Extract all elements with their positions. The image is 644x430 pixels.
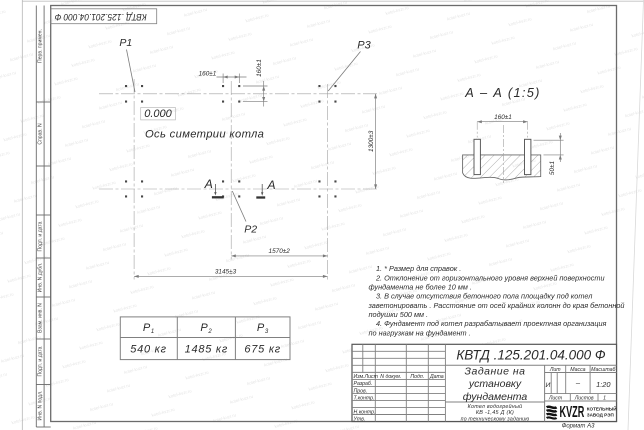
svg-text:3: 3 — [265, 329, 269, 335]
svg-text:Пров.: Пров. — [354, 388, 368, 394]
svg-text:kotel-kvzr.ru: kotel-kvzr.ru — [416, 189, 441, 200]
svg-text:kotel-kvzr.ru: kotel-kvzr.ru — [546, 120, 571, 131]
svg-text:подушки 500 мм .: подушки 500 мм . — [369, 310, 429, 319]
svg-text:kotel-kvzr.ru: kotel-kvzr.ru — [246, 375, 271, 386]
svg-text:Р2: Р2 — [244, 224, 257, 236]
svg-text:kotel-kvzr.ru: kotel-kvzr.ru — [280, 338, 305, 349]
svg-text:kotel-kvzr.ru: kotel-kvzr.ru — [64, 137, 89, 148]
svg-text:kotel-kvzr.ru: kotel-kvzr.ru — [552, 40, 577, 51]
svg-text:kotel-kvzr.ru: kotel-kvzr.ru — [505, 237, 530, 248]
svg-text:Р3: Р3 — [357, 40, 371, 52]
svg-text:Масштаб: Масштаб — [591, 367, 616, 373]
svg-text:kotel-kvzr.ru: kotel-kvzr.ru — [556, 182, 581, 193]
svg-text:kotel-kvzr.ru: kotel-kvzr.ru — [317, 79, 342, 90]
svg-text:kotel-kvzr.ru: kotel-kvzr.ru — [183, 7, 208, 18]
svg-text:kotel-kvzr.ru: kotel-kvzr.ru — [461, 213, 486, 224]
svg-text:kotel-kvzr.ru: kotel-kvzr.ru — [325, 362, 350, 373]
svg-text:kotel-kvzr.ru: kotel-kvzr.ru — [573, 163, 598, 174]
svg-text:Перв. примен.: Перв. примен. — [38, 29, 44, 63]
svg-text:kotel-kvzr.ru: kotel-kvzr.ru — [389, 146, 414, 157]
svg-text:Лист: Лист — [548, 396, 563, 402]
svg-text:kotel-kvzr.ru: kotel-kvzr.ru — [624, 107, 644, 118]
svg-text:kotel-kvzr.ru: kotel-kvzr.ru — [68, 278, 93, 289]
svg-text:kotel-kvzr.ru: kotel-kvzr.ru — [130, 284, 155, 295]
svg-text:Подп. и дата: Подп. и дата — [38, 221, 44, 251]
svg-text:kotel-kvzr.ru: kotel-kvzr.ru — [221, 111, 246, 122]
svg-text:Н.контр.: Н.контр. — [354, 410, 376, 416]
svg-text:kotel-kvzr.ru: kotel-kvzr.ru — [211, 49, 236, 60]
svg-text:1485 кг: 1485 кг — [185, 344, 228, 356]
svg-text:kotel-kvzr.ru: kotel-kvzr.ru — [529, 139, 554, 150]
svg-text:kotel-kvzr.ru: kotel-kvzr.ru — [412, 48, 437, 59]
svg-text:kotel-kvzr.ru: kotel-kvzr.ru — [327, 141, 352, 152]
svg-text:Р: Р — [200, 322, 208, 334]
svg-text:kotel-kvzr.ru: kotel-kvzr.ru — [0, 211, 21, 222]
svg-text:kotel-kvzr.ru: kotel-kvzr.ru — [225, 252, 250, 263]
svg-text:kotel-kvzr.ru: kotel-kvzr.ru — [0, 230, 4, 241]
svg-text:kotel-kvzr.ru: kotel-kvzr.ru — [344, 122, 369, 133]
svg-text:Р: Р — [143, 322, 151, 334]
svg-text:kotel-kvzr.ru: kotel-kvzr.ru — [272, 55, 297, 66]
svg-text:kotel-kvzr.ru: kotel-kvzr.ru — [614, 46, 639, 57]
svg-text:КВТД .125.201.04.000 Ф: КВТД .125.201.04.000 Ф — [55, 12, 147, 22]
svg-text:kotel-kvzr.ru: kotel-kvzr.ru — [98, 100, 123, 111]
svg-text:kotel-kvzr.ru: kotel-kvzr.ru — [109, 161, 134, 172]
svg-text:kotel-kvzr.ru: kotel-kvzr.ru — [586, 3, 611, 14]
svg-text:kotel-kvzr.ru: kotel-kvzr.ru — [3, 131, 28, 142]
svg-text:Лит: Лит — [549, 367, 561, 373]
svg-text:Р1: Р1 — [119, 37, 132, 49]
svg-text:kotel-kvzr.ru: kotel-kvzr.ru — [177, 87, 202, 98]
svg-text:kotel-kvzr.ru: kotel-kvzr.ru — [157, 327, 182, 338]
svg-text:kotel-kvzr.ru: kotel-kvzr.ru — [335, 423, 360, 430]
svg-text:kotel-kvzr.ru: kotel-kvzr.ru — [253, 295, 278, 306]
svg-text:kotel-kvzr.ru: kotel-kvzr.ru — [334, 61, 359, 72]
svg-text:3. В случае отсутствия бет: 3. В случае отсутствия бетонного пола пл… — [376, 292, 592, 301]
svg-text:Разраб.: Разраб. — [354, 381, 373, 387]
svg-text:kotel-kvzr.ru: kotel-kvzr.ru — [0, 353, 25, 364]
svg-text:kotel-kvzr.ru: kotel-kvzr.ru — [580, 83, 605, 94]
svg-text:kotel-kvzr.ru: kotel-kvzr.ru — [106, 382, 131, 393]
svg-text:kotel-kvzr.ru: kotel-kvzr.ru — [306, 18, 331, 29]
svg-text:Масса: Масса — [570, 367, 585, 373]
svg-text:kotel-kvzr.ru: kotel-kvzr.ru — [51, 297, 76, 308]
svg-text:kotel-kvzr.ru: kotel-kvzr.ru — [187, 148, 212, 159]
svg-text:3145±3: 3145±3 — [215, 268, 237, 275]
svg-text:kotel-kvzr.ru: kotel-kvzr.ru — [597, 64, 622, 75]
svg-text:kotel-kvzr.ru: kotel-kvzr.ru — [11, 414, 36, 425]
svg-text:1. * Размер для справок .: 1. * Размер для справок . — [376, 264, 461, 273]
svg-text:kotel-kvzr.ru: kotel-kvzr.ru — [126, 142, 151, 153]
svg-text:фундамента: фундамента — [463, 391, 528, 403]
svg-text:kotel-kvzr.ru: kotel-kvzr.ru — [378, 85, 403, 96]
svg-text:kotel-kvzr.ru: kotel-kvzr.ru — [136, 204, 161, 215]
svg-text:kotel-kvzr.ru: kotel-kvzr.ru — [607, 126, 632, 137]
svg-text:kotel-kvzr.ru: kotel-kvzr.ru — [590, 144, 615, 155]
svg-text:kotel-kvzr.ru: kotel-kvzr.ru — [446, 10, 471, 21]
svg-text:kotel-kvzr.ru: kotel-kvzr.ru — [198, 209, 223, 220]
svg-text:Подп. и дата: Подп. и дата — [38, 346, 44, 376]
svg-text:kotel-kvzr.ru: kotel-kvzr.ru — [488, 256, 513, 267]
svg-text:kotel-kvzr.ru: kotel-kvzr.ru — [262, 0, 287, 5]
svg-text:kotel-kvzr.ru: kotel-kvzr.ru — [321, 221, 346, 232]
svg-text:Листов: Листов — [574, 396, 594, 402]
svg-text:kotel-kvzr.ru: kotel-kvzr.ru — [331, 282, 356, 293]
svg-text:Котел водогрейный: Котел водогрейный — [468, 403, 523, 410]
svg-text:kotel-kvzr.ru: kotel-kvzr.ru — [274, 418, 299, 429]
svg-text:Инв. N дубл.: Инв. N дубл. — [38, 263, 44, 293]
svg-text:kotel-kvzr.ru: kotel-kvzr.ru — [9, 51, 34, 62]
svg-text:kotel-kvzr.ru: kotel-kvzr.ru — [147, 265, 172, 276]
svg-text:kotel-kvzr.ru: kotel-kvzr.ru — [85, 260, 110, 271]
svg-text:Инв. N подл.: Инв. N подл. — [38, 391, 44, 421]
svg-text:kotel-kvzr.ru: kotel-kvzr.ru — [406, 128, 431, 139]
svg-text:kotel-kvzr.ru: kotel-kvzr.ru — [287, 258, 312, 269]
svg-text:kotel-kvzr.ru: kotel-kvzr.ru — [618, 187, 643, 198]
svg-text:kotel-kvzr.ru: kotel-kvzr.ru — [522, 219, 547, 230]
svg-text:kotel-kvzr.ru: kotel-kvzr.ru — [102, 241, 127, 252]
svg-text:N докум.: N докум. — [380, 374, 401, 380]
svg-text:фундамента не более 10 мм: фундамента не более 10 мм . — [369, 283, 472, 292]
svg-text:–: – — [575, 379, 581, 388]
svg-text:kotel-kvzr.ru: kotel-kvzr.ru — [229, 394, 254, 405]
svg-text:kotel-kvzr.ru: kotel-kvzr.ru — [71, 57, 96, 68]
svg-text:по техническому заданию: по техническому заданию — [461, 416, 530, 422]
svg-text:1300±3: 1300±3 — [368, 130, 375, 152]
svg-text:kotel-kvzr.ru: kotel-kvzr.ru — [567, 243, 592, 254]
svg-text:kotel-kvzr.ru: kotel-kvzr.ru — [166, 25, 191, 36]
svg-text:kotel-kvzr.ru: kotel-kvzr.ru — [17, 334, 42, 345]
svg-text:kotel-kvzr.ru: kotel-kvzr.ru — [249, 154, 274, 165]
svg-text:kotel-kvzr.ru: kotel-kvzr.ru — [181, 228, 206, 239]
svg-text:kotel-kvzr.ru: kotel-kvzr.ru — [535, 59, 560, 70]
svg-text:kotel-kvzr.ru: kotel-kvzr.ru — [427, 250, 452, 261]
svg-text:675 кг: 675 кг — [244, 344, 281, 356]
svg-text:kotel-kvzr.ru: kotel-kvzr.ru — [444, 232, 469, 243]
svg-text:kotel-kvzr.ru: kotel-kvzr.ru — [0, 371, 8, 382]
svg-text:kotel-kvzr.ru: kotel-kvzr.ru — [304, 239, 329, 250]
svg-text:kotel-kvzr.ru: kotel-kvzr.ru — [96, 321, 121, 332]
svg-text:1: 1 — [151, 329, 154, 335]
svg-text:0.000: 0.000 — [144, 108, 172, 120]
svg-text:kotel-kvzr.ru: kotel-kvzr.ru — [149, 44, 174, 55]
svg-text:kotel-kvzr.ru: kotel-kvzr.ru — [569, 22, 594, 33]
svg-text:kotel-kvzr.ru: kotel-kvzr.ru — [293, 178, 318, 189]
svg-text:kotel-kvzr.ru: kotel-kvzr.ru — [58, 217, 83, 228]
svg-text:kotel-kvzr.ru: kotel-kvzr.ru — [550, 262, 575, 273]
svg-text:kotel-kvzr.ru: kotel-kvzr.ru — [429, 29, 454, 40]
svg-text:Ось симетрии котла: Ось симетрии котла — [145, 128, 264, 140]
svg-text:kotel-kvzr.ru: kotel-kvzr.ru — [474, 53, 499, 64]
svg-text:kotel-kvzr.ru: kotel-kvzr.ru — [563, 102, 588, 113]
svg-text:kotel-kvzr.ru: kotel-kvzr.ru — [259, 215, 284, 226]
svg-text:kotel-kvzr.ru: kotel-kvzr.ru — [0, 150, 11, 161]
svg-text:Задание на: Задание на — [465, 365, 526, 377]
svg-text:kotel-kvzr.ru: kotel-kvzr.ru — [382, 226, 407, 237]
svg-text:kotel-kvzr.ru: kotel-kvzr.ru — [122, 1, 147, 12]
svg-text:kotel-kvzr.ru: kotel-kvzr.ru — [368, 23, 393, 34]
svg-text:Справ. N: Справ. N — [38, 123, 44, 145]
svg-text:4. Фундамент под котел раз: 4. Фундамент под котел разрабатывает про… — [376, 319, 607, 328]
svg-text:kotel-kvzr.ru: kotel-kvzr.ru — [37, 94, 62, 105]
svg-text:kotel-kvzr.ru: kotel-kvzr.ru — [54, 75, 79, 86]
svg-text:kotel-kvzr.ru: kotel-kvzr.ru — [153, 185, 178, 196]
svg-text:kotel-kvzr.ru: kotel-kvzr.ru — [0, 8, 7, 19]
svg-text:kotel-kvzr.ru: kotel-kvzr.ru — [119, 222, 144, 233]
svg-text:kotel-kvzr.ru: kotel-kvzr.ru — [0, 291, 15, 302]
svg-text:kotel-kvzr.ru: kotel-kvzr.ru — [297, 319, 322, 330]
svg-text:Утв.: Утв. — [354, 417, 366, 423]
svg-text:540 кг: 540 кг — [130, 344, 167, 356]
svg-text:kotel-kvzr.ru: kotel-kvzr.ru — [314, 301, 339, 312]
svg-text:kotel-kvzr.ru: kotel-kvzr.ru — [228, 31, 253, 42]
svg-text:kotel-kvzr.ru: kotel-kvzr.ru — [457, 72, 482, 83]
svg-text:kotel-kvzr.ru: kotel-kvzr.ru — [385, 5, 410, 16]
svg-text:kotel-kvzr.ru: kotel-kvzr.ru — [62, 358, 87, 369]
svg-text:1: 1 — [603, 396, 606, 402]
svg-text:заветонировать . Расстояние: заветонировать . Расстояние от осей край… — [368, 301, 625, 310]
svg-text:kotel-kvzr.ru: kotel-kvzr.ru — [365, 245, 390, 256]
svg-text:kotel-kvzr.ru: kotel-kvzr.ru — [635, 169, 644, 180]
svg-text:Р: Р — [257, 322, 265, 334]
svg-text:kotel-kvzr.ru: kotel-kvzr.ru — [45, 377, 70, 388]
svg-text:kotel-kvzr.ru: kotel-kvzr.ru — [89, 401, 114, 412]
svg-text:kotel-kvzr.ru: kotel-kvzr.ru — [123, 364, 148, 375]
svg-text:1:20: 1:20 — [596, 380, 611, 389]
svg-text:kotel-kvzr.ru: kotel-kvzr.ru — [81, 118, 106, 129]
svg-text:kotel-kvzr.ru: kotel-kvzr.ru — [289, 36, 314, 47]
svg-text:kotel-kvzr.ru: kotel-kvzr.ru — [423, 109, 448, 120]
svg-text:kotel-kvzr.ru: kotel-kvzr.ru — [601, 206, 626, 217]
svg-text:1570±2: 1570±2 — [269, 248, 291, 255]
svg-text:kotel-kvzr.ru: kotel-kvzr.ru — [361, 103, 386, 114]
svg-text:kotel-kvzr.ru: kotel-kvzr.ru — [115, 81, 140, 92]
svg-text:kotel-kvzr.ru: kotel-kvzr.ru — [79, 340, 104, 351]
svg-text:kotel-kvzr.ru: kotel-kvzr.ru — [584, 224, 609, 235]
svg-text:kotel-kvzr.ru: kotel-kvzr.ru — [113, 302, 138, 313]
svg-text:kotel-kvzr.ru: kotel-kvzr.ru — [263, 356, 288, 367]
svg-text:KVZR: KVZR — [560, 404, 585, 421]
svg-text:по нагрузкам на фундамент .: по нагрузкам на фундамент . — [369, 328, 471, 337]
svg-text:kotel-kvzr.ru: kotel-kvzr.ru — [185, 369, 210, 380]
svg-text:160±1: 160±1 — [256, 59, 263, 77]
svg-text:А: А — [266, 178, 275, 192]
svg-text:kotel-kvzr.ru: kotel-kvzr.ru — [232, 172, 257, 183]
svg-text:ЗАВОД РЭП: ЗАВОД РЭП — [587, 413, 614, 418]
svg-text:kotel-kvzr.ru: kotel-kvzr.ru — [134, 425, 159, 430]
svg-text:kotel-kvzr.ru: kotel-kvzr.ru — [191, 289, 216, 300]
svg-text:kotel-kvzr.ru: kotel-kvzr.ru — [0, 70, 17, 81]
svg-text:kotel-kvzr.ru: kotel-kvzr.ru — [245, 12, 270, 23]
svg-text:kotel-kvzr.ru: kotel-kvzr.ru — [399, 208, 424, 219]
svg-text:kotel-kvzr.ru: kotel-kvzr.ru — [174, 308, 199, 319]
svg-text:kotel-kvzr.ru: kotel-kvzr.ru — [539, 200, 564, 211]
svg-text:kotel-kvzr.ru: kotel-kvzr.ru — [433, 170, 458, 181]
svg-text:kotel-kvzr.ru: kotel-kvzr.ru — [170, 167, 195, 178]
svg-text:kotel-kvzr.ru: kotel-kvzr.ru — [276, 196, 301, 207]
svg-text:КОТЕЛЬНЫЙ: КОТЕЛЬНЫЙ — [587, 405, 617, 412]
svg-text:kotel-kvzr.ru: kotel-kvzr.ru — [168, 388, 193, 399]
svg-text:kotel-kvzr.ru: kotel-kvzr.ru — [270, 276, 295, 287]
svg-text:kotel-kvzr.ru: kotel-kvzr.ru — [132, 62, 157, 73]
svg-text:kotel-kvzr.ru: kotel-kvzr.ru — [440, 90, 465, 101]
svg-text:160±1: 160±1 — [199, 70, 217, 77]
svg-text:kotel-kvzr.ru: kotel-kvzr.ru — [75, 198, 100, 209]
svg-text:kotel-kvzr.ru: kotel-kvzr.ru — [20, 113, 45, 124]
svg-text:А – А (1:5): А – А (1:5) — [464, 85, 540, 100]
svg-text:kotel-kvzr.ru: kotel-kvzr.ru — [395, 66, 420, 77]
svg-text:kotel-kvzr.ru: kotel-kvzr.ru — [13, 193, 38, 204]
svg-text:kotel-kvzr.ru: kotel-kvzr.ru — [310, 159, 335, 170]
svg-text:kotel-kvzr.ru: kotel-kvzr.ru — [491, 35, 516, 46]
svg-text:kotel-kvzr.ru: kotel-kvzr.ru — [508, 16, 533, 27]
svg-text:КВТД .125.201.04.000 Ф: КВТД .125.201.04.000 Ф — [456, 348, 606, 363]
svg-text:kotel-kvzr.ru: kotel-kvzr.ru — [266, 135, 291, 146]
svg-text:А: А — [204, 177, 213, 191]
svg-text:Подп.: Подп. — [410, 374, 424, 380]
svg-text:Изм.Лист: Изм.Лист — [354, 374, 379, 380]
svg-text:Взам. инв. N: Взам. инв. N — [38, 303, 44, 333]
svg-text:2. Отклонение от горизонтал: 2. Отклонение от горизонтального уровня … — [375, 273, 605, 282]
svg-text:kotel-kvzr.ru: kotel-kvzr.ru — [478, 195, 503, 206]
svg-text:kotel-kvzr.ru: kotel-kvzr.ru — [283, 116, 308, 127]
svg-text:kotel-kvzr.ru: kotel-kvzr.ru — [30, 174, 55, 185]
svg-text:kotel-kvzr.ru: kotel-kvzr.ru — [291, 399, 316, 410]
svg-text:kotel-kvzr.ru: kotel-kvzr.ru — [0, 0, 24, 1]
svg-text:kotel-kvzr.ru: kotel-kvzr.ru — [164, 247, 189, 258]
svg-text:kotel-kvzr.ru: kotel-kvzr.ru — [151, 407, 176, 418]
svg-text:kotel-kvzr.ru: kotel-kvzr.ru — [7, 273, 32, 284]
svg-text:установку: установку — [468, 378, 522, 390]
svg-text:2: 2 — [207, 329, 212, 335]
svg-text:Т.контр.: Т.контр. — [354, 395, 375, 401]
svg-text:Формат А3: Формат А3 — [562, 423, 595, 429]
svg-text:50±1: 50±1 — [549, 160, 556, 175]
svg-text:kotel-kvzr.ru: kotel-kvzr.ru — [88, 38, 113, 49]
svg-text:И: И — [545, 382, 550, 389]
svg-text:КВ -1,45 Д (К): КВ -1,45 Д (К) — [476, 410, 514, 416]
svg-text:160±1: 160±1 — [494, 114, 512, 121]
svg-text:Дата: Дата — [429, 374, 444, 380]
svg-text:kotel-kvzr.ru: kotel-kvzr.ru — [41, 235, 66, 246]
svg-text:kotel-kvzr.ru: kotel-kvzr.ru — [338, 202, 363, 213]
svg-text:kotel-kvzr.ru: kotel-kvzr.ru — [300, 98, 325, 109]
svg-text:kotel-kvzr.ru: kotel-kvzr.ru — [348, 263, 373, 274]
svg-text:kotel-kvzr.ru: kotel-kvzr.ru — [308, 381, 333, 392]
